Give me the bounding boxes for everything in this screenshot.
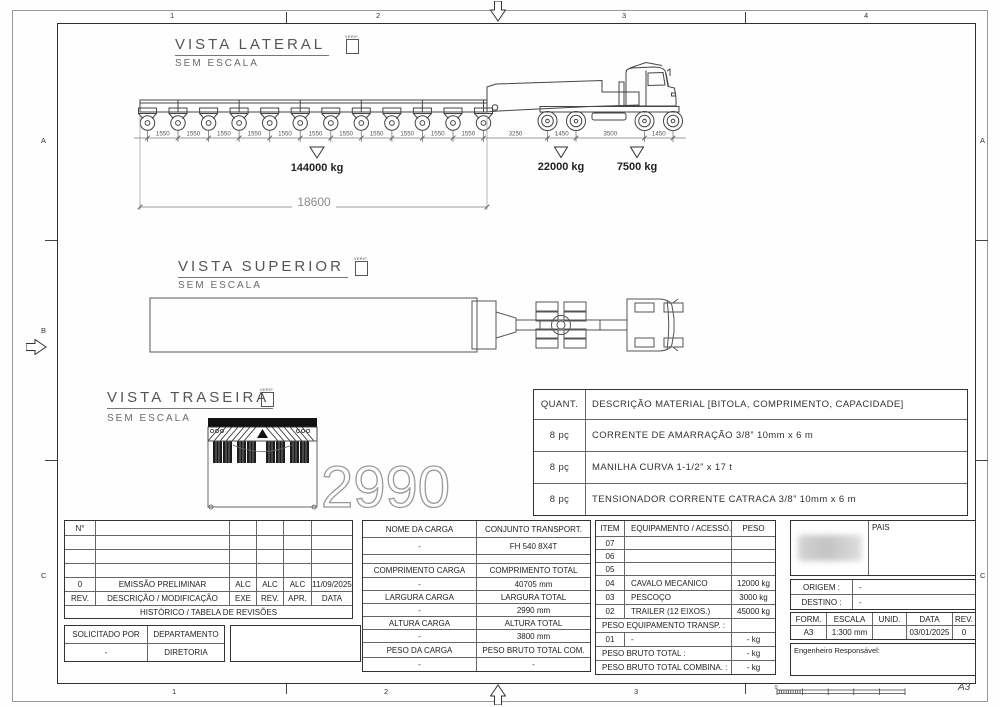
data-value: 03/01/2025 xyxy=(907,626,953,639)
request-header-departamento: DEPARTAMENTO xyxy=(148,626,224,644)
view-superior-title: VISTA SUPERIOR xyxy=(178,258,348,278)
sheet-format-label: A3 xyxy=(958,682,970,693)
grid-label-top-3: 3 xyxy=(622,11,626,20)
rev-empty-cell xyxy=(257,536,284,550)
equip-total-value: - kg xyxy=(732,647,775,661)
rev-entry-exe: ALC xyxy=(230,578,257,592)
request-header-solicitado: SOLICITADO POR xyxy=(65,626,148,644)
equipment-table: ITEM EQUIPAMENTO / ACESSÓ. PESO 07 06 05… xyxy=(595,520,776,675)
dim-label: 3250 xyxy=(509,131,523,138)
rev-empty-cell xyxy=(230,550,257,564)
view-lateral-title: VISTA LATERAL xyxy=(175,36,329,56)
side-view-drawing: 1550 1550 1550 1550 1550 1550 1550 1550 … xyxy=(130,60,690,215)
rev-empty-cell xyxy=(96,521,230,536)
rev-header-rev: REV. xyxy=(65,592,96,606)
grid-tick xyxy=(286,683,287,694)
rev-empty-cell xyxy=(230,536,257,550)
verif-box xyxy=(355,261,368,276)
rev-footer: HISTÓRICO / TABELA DE REVISÕES xyxy=(65,606,352,618)
top-view-drawing xyxy=(140,290,690,365)
equip-peso xyxy=(732,563,775,576)
form-value: A3 xyxy=(791,626,827,639)
equip-name xyxy=(625,537,732,550)
cargo-cell: - xyxy=(477,658,590,671)
dim-label: 1450 xyxy=(652,131,666,138)
cargo-cell: ALTURA TOTAL xyxy=(477,617,590,630)
request-value-solicitado: - xyxy=(65,644,148,661)
equip-item: 07 xyxy=(596,537,625,550)
equip-peso: 12000 kg xyxy=(732,576,775,591)
grid-tick xyxy=(286,12,287,23)
equip-item: 01 xyxy=(596,633,625,647)
equip-peso xyxy=(732,550,775,563)
grid-label-top-2: 2 xyxy=(376,11,380,20)
dim-label: 1550 xyxy=(156,131,170,138)
materials-qty-cell: 8 pç xyxy=(534,452,586,484)
materials-table: QUANT. DESCRIÇÃO MATERIAL [BITOLA, COMPR… xyxy=(533,389,968,516)
rev-empty-cell xyxy=(257,564,284,578)
grid-label-top-4: 4 xyxy=(864,11,868,20)
cargo-cell xyxy=(477,555,590,564)
cargo-cell: - xyxy=(363,658,477,671)
cargo-table: NOME DA CARGA CONJUNTO TRANSPORT. - FH 5… xyxy=(362,520,591,672)
dim-label: 1550 xyxy=(186,131,200,138)
cab-top xyxy=(627,299,674,351)
view-traseira-subtitle: SEM ESCALA xyxy=(107,413,191,424)
rev-empty-cell xyxy=(65,536,96,550)
deck-edge xyxy=(208,418,317,427)
grid-tick xyxy=(745,683,746,694)
dim-label: 1550 xyxy=(217,131,231,138)
rev-empty-cell xyxy=(312,550,352,564)
engineer-box: Engenheiro Responsável: xyxy=(790,643,976,676)
revision-table: N° 0 EMISSÃO PRELIMINAR ALC ALC ALC 11/0… xyxy=(64,520,353,619)
drive-load-label: 22000 kg xyxy=(538,161,584,173)
dim-label: 1550 xyxy=(370,131,384,138)
grid-label-right-c: C xyxy=(980,571,985,580)
rev-empty-cell xyxy=(284,564,312,578)
cargo-cell: COMPRIMENTO TOTAL xyxy=(477,564,590,578)
grid-label-bottom-2: 2 xyxy=(384,687,388,696)
request-table: SOLICITADO POR DEPARTAMENTO - DIRETORIA xyxy=(64,625,225,662)
rev-header-date: DATA xyxy=(312,592,352,606)
tractor-side xyxy=(487,63,683,131)
unid-value xyxy=(873,626,907,639)
trailer-side xyxy=(139,100,493,130)
cargo-cell: 40705 mm xyxy=(477,578,590,591)
cargo-cell: - xyxy=(363,578,477,591)
center-mark-arrow-top xyxy=(490,1,506,22)
rev-entry-number: 0 xyxy=(65,578,96,592)
equip-total-label: PESO BRUTO TOTAL : xyxy=(596,647,732,661)
rev-entry-date: 11/09/2025 xyxy=(312,578,352,592)
cargo-cell: PESO BRUTO TOTAL COM. xyxy=(477,643,590,658)
equip-item: 02 xyxy=(596,605,625,619)
rev-header-apr: APR. xyxy=(284,592,312,606)
origin-destination-table: ORIGEM : - DESTINO : - xyxy=(790,579,976,610)
form-header: FORM. xyxy=(791,613,827,626)
grid-tick xyxy=(975,460,988,461)
company-logo-redacted xyxy=(791,521,869,575)
printed-scale-bar: 0 xyxy=(773,684,913,698)
rev-empty-cell xyxy=(230,564,257,578)
verif-label: VERIF. xyxy=(352,256,370,261)
rev-empty-cell xyxy=(96,536,230,550)
dim-label: 1550 xyxy=(461,131,475,138)
engineer-label: Engenheiro Responsável: xyxy=(791,644,975,655)
materials-desc-cell: CORRENTE DE AMARRAÇÃO 3/8” 10mm x 6 m xyxy=(586,420,967,452)
rev-empty-cell xyxy=(65,550,96,564)
rev-empty-cell xyxy=(284,550,312,564)
rear-tires xyxy=(213,441,309,463)
rev-empty-cell xyxy=(96,550,230,564)
dim-label: 1550 xyxy=(309,131,323,138)
axle-load-annotations: 144000 kg 22000 kg 7500 kg xyxy=(291,147,657,174)
signature-box xyxy=(230,625,361,662)
center-mark-arrow-left xyxy=(26,339,47,355)
verif-box xyxy=(346,39,359,54)
grid-tick xyxy=(975,240,988,241)
grid-label-left-c: C xyxy=(41,571,46,580)
cargo-cell: 2990 mm xyxy=(477,604,590,617)
equip-peso: 3000 kg xyxy=(732,591,775,605)
rev-empty-cell xyxy=(312,521,352,536)
escala-header: ESCALA xyxy=(827,613,873,626)
overall-width-label: 2990 xyxy=(321,455,450,515)
rev-empty-cell xyxy=(257,521,284,536)
equip-item: 05 xyxy=(596,563,625,576)
equip-transp-label: PESO EQUIPAMENTO TRANSP. : xyxy=(596,619,732,633)
materials-desc-cell: TENSIONADOR CORRENTE CATRACA 3/8” 10mm x… xyxy=(586,484,967,515)
equip-item: 06 xyxy=(596,550,625,563)
logo-pais-box: PAIS xyxy=(790,520,976,576)
rev-empty-cell xyxy=(65,564,96,578)
rev-n-label: N° xyxy=(65,521,96,536)
verif-box xyxy=(261,392,274,407)
cargo-cell: CONJUNTO TRANSPORT. xyxy=(477,521,590,538)
trailer-deck-top xyxy=(150,298,477,352)
equip-item: 04 xyxy=(596,576,625,591)
rear-view-drawing: 2990 xyxy=(200,410,485,515)
rev-header-desc: DESCRIÇÃO / MODIFICAÇÃO xyxy=(96,592,230,606)
equip-transp-value xyxy=(732,619,775,633)
origem-value: - xyxy=(853,580,975,595)
equip-name: CAVALO MECANICO xyxy=(625,576,732,591)
dim-label: 1550 xyxy=(248,131,262,138)
dim-label: 1550 xyxy=(339,131,353,138)
grid-label-left-a: A xyxy=(41,136,46,145)
escala-value: 1:300 mm xyxy=(827,626,873,639)
cargo-cell: NOME DA CARGA xyxy=(363,521,477,538)
dim-label: 1550 xyxy=(400,131,414,138)
grid-label-top-1: 1 xyxy=(170,11,174,20)
verif-stamp-lateral: VERIF. xyxy=(343,34,361,54)
equip-name: TRAILER (12 EIXOS.) xyxy=(625,605,732,619)
verif-label: VERIF. xyxy=(258,387,276,392)
cargo-cell: FH 540 8X4T xyxy=(477,538,590,555)
equip-combined-value: - kg xyxy=(732,661,775,674)
equip-name: - xyxy=(625,633,732,647)
center-mark-arrow-bottom xyxy=(490,684,506,705)
rev-value: 0 xyxy=(953,626,975,639)
origem-label: ORIGEM : xyxy=(791,580,853,595)
equip-item: 03 xyxy=(596,591,625,605)
equip-peso: 45000 kg xyxy=(732,605,775,619)
front-load-label: 7500 kg xyxy=(617,161,657,173)
verif-stamp-superior: VERIF. xyxy=(352,256,370,276)
rev-empty-cell xyxy=(257,550,284,564)
request-value-departamento: DIRETORIA xyxy=(148,644,224,661)
grid-tick xyxy=(45,240,57,241)
grid-label-left-b: B xyxy=(41,326,46,335)
equip-combined-label: PESO BRUTO TOTAL COMBINA. : xyxy=(596,661,732,674)
rev-empty-cell xyxy=(230,521,257,536)
equip-name xyxy=(625,563,732,576)
cargo-cell: LARGURA CARGA xyxy=(363,591,477,604)
format-scale-table: FORM. ESCALA UNID. DATA REV. A3 1:300 mm… xyxy=(790,612,976,640)
axle-dimension-labels: 1550 1550 1550 1550 1550 1550 1550 1550 … xyxy=(156,131,666,138)
materials-desc-header: DESCRIÇÃO MATERIAL [BITOLA, COMPRIMENTO,… xyxy=(586,390,967,420)
cargo-cell: - xyxy=(363,538,477,555)
rev-entry-description: EMISSÃO PRELIMINAR xyxy=(96,578,230,592)
cargo-cell xyxy=(363,555,477,564)
materials-qty-cell: 8 pç xyxy=(534,484,586,515)
equip-header-item: ITEM xyxy=(596,521,625,537)
grid-label-right-a: A xyxy=(980,136,985,145)
overall-length-label: 18600 xyxy=(297,195,331,209)
scale-zero-label: 0 xyxy=(775,685,778,691)
fifth-wheel-top xyxy=(552,316,571,335)
rev-header: REV. xyxy=(953,613,975,626)
cargo-cell: LARGURA TOTAL xyxy=(477,591,590,604)
pais-cell: PAIS xyxy=(869,521,975,575)
equip-name: PESCOÇO xyxy=(625,591,732,605)
cargo-cell: PESO DA CARGA xyxy=(363,643,477,658)
destino-label: DESTINO : xyxy=(791,595,853,609)
grid-tick xyxy=(745,12,746,23)
tractor-front-wheels-top xyxy=(635,303,683,347)
unid-header: UNID. xyxy=(873,613,907,626)
rev-entry-rev: ALC xyxy=(257,578,284,592)
equip-name xyxy=(625,550,732,563)
cargo-cell: - xyxy=(363,604,477,617)
materials-qty-cell: 8 pç xyxy=(534,420,586,452)
dim-label: 1550 xyxy=(278,131,292,138)
equip-header-peso: PESO xyxy=(732,521,775,537)
trailer-load-label: 144000 kg xyxy=(291,162,344,174)
equip-peso xyxy=(732,537,775,550)
dim-label: 3500 xyxy=(603,131,617,138)
dim-label: 1550 xyxy=(431,131,445,138)
grid-label-bottom-1: 1 xyxy=(172,687,176,696)
destino-value: - xyxy=(853,595,975,609)
rev-empty-cell xyxy=(312,536,352,550)
rev-empty-cell xyxy=(96,564,230,578)
tractor-rear-wheels-top xyxy=(536,302,586,348)
verif-label: VERIF. xyxy=(343,34,361,39)
rev-empty-cell xyxy=(284,521,312,536)
grid-label-bottom-3: 3 xyxy=(634,687,638,696)
cargo-cell: - xyxy=(363,630,477,643)
cargo-cell: ALTURA CARGA xyxy=(363,617,477,630)
view-traseira-title: VISTA TRASEIRA xyxy=(107,389,273,409)
cargo-cell: COMPRIMENTO CARGA xyxy=(363,564,477,578)
rev-header-rev2: REV. xyxy=(257,592,284,606)
rev-entry-apr: ALC xyxy=(284,578,312,592)
materials-qty-header: QUANT. xyxy=(534,390,586,420)
rev-header-exe: EXE xyxy=(230,592,257,606)
rev-empty-cell xyxy=(312,564,352,578)
dim-label: 1450 xyxy=(555,131,569,138)
grid-tick xyxy=(45,460,57,461)
rev-empty-cell xyxy=(284,536,312,550)
drawing-sheet: 1 2 3 4 1 2 3 A B C A C VISTA LATERAL VE… xyxy=(0,0,1000,707)
data-header: DATA xyxy=(907,613,953,626)
equip-peso: - kg xyxy=(732,633,775,647)
logo-blur xyxy=(798,535,862,561)
materials-desc-cell: MANILHA CURVA 1-1/2” x 17 t xyxy=(586,452,967,484)
equip-header-name: EQUIPAMENTO / ACESSÓ. xyxy=(625,521,732,537)
verif-stamp-traseira: VERIF. xyxy=(258,387,276,407)
cargo-cell: 3800 mm xyxy=(477,630,590,643)
